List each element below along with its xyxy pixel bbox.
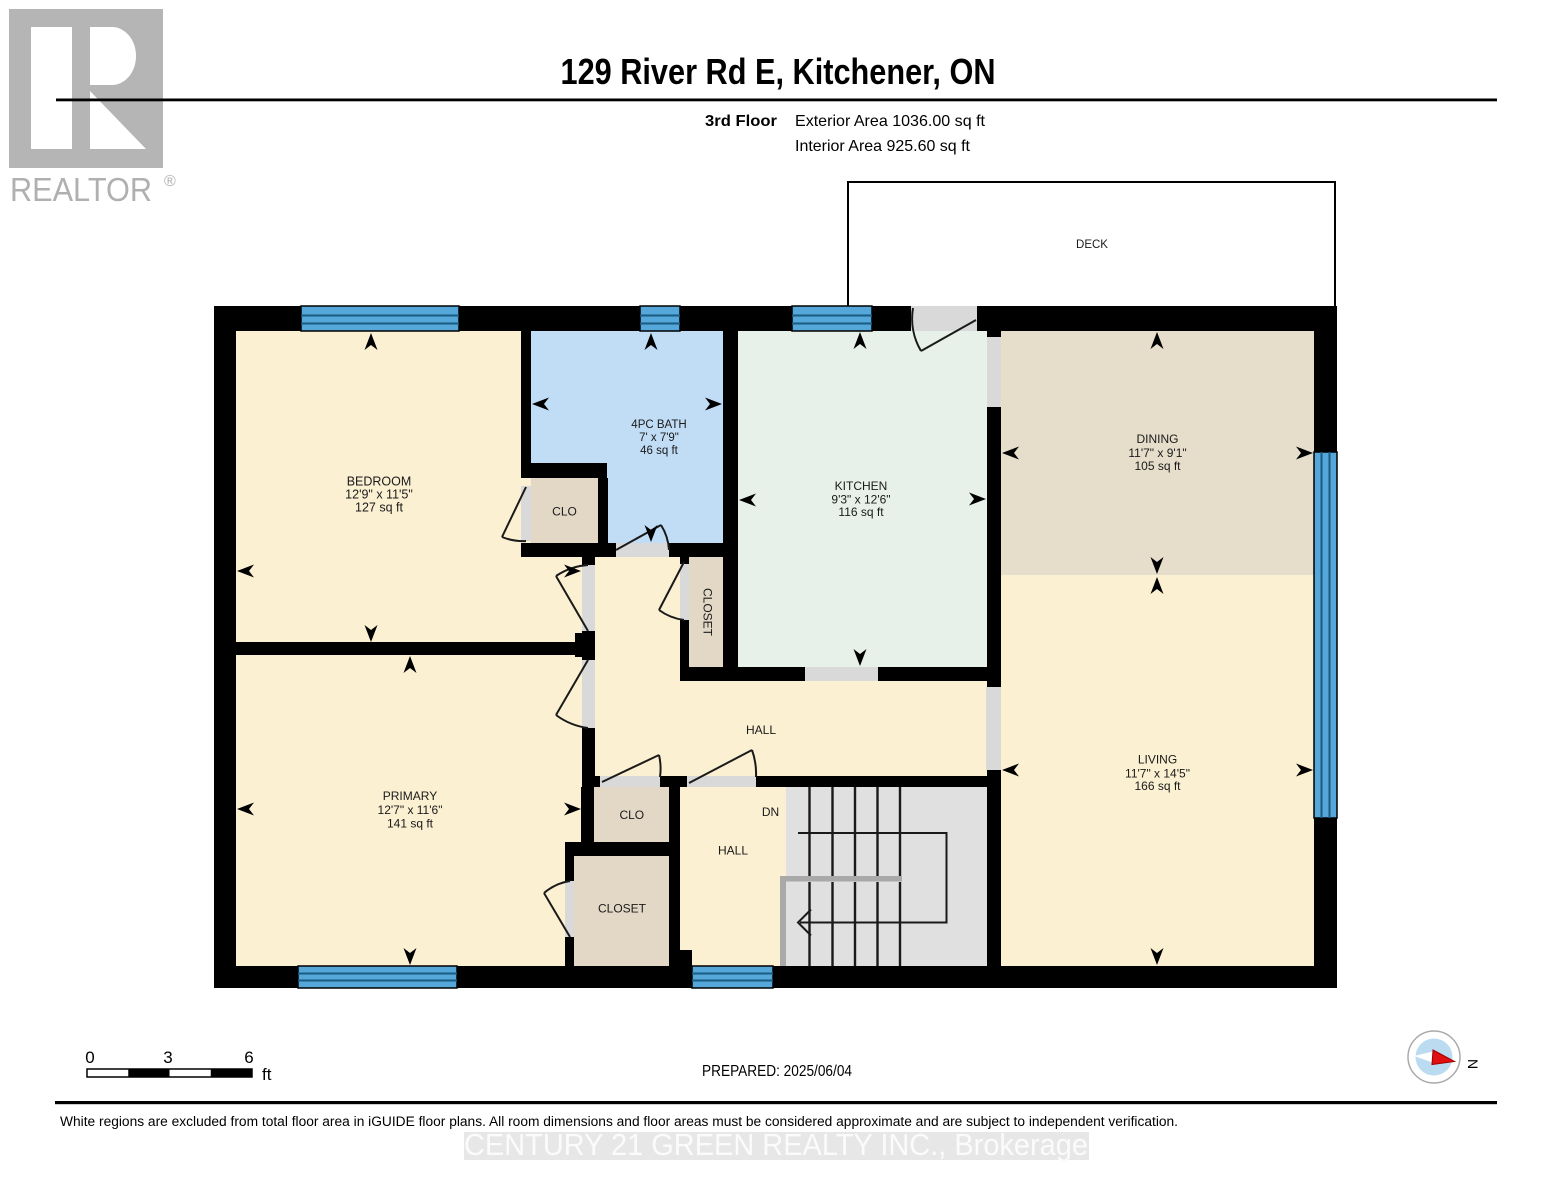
svg-text:12'7" x 11'6": 12'7" x 11'6": [378, 803, 443, 817]
svg-text:PREPARED: 2025/06/04: PREPARED: 2025/06/04: [702, 1063, 852, 1080]
svg-text:166 sq ft: 166 sq ft: [1134, 779, 1181, 793]
svg-text:ft: ft: [262, 1065, 272, 1084]
svg-text:127 sq ft: 127 sq ft: [355, 501, 403, 515]
svg-text:HALL: HALL: [746, 723, 776, 737]
svg-text:4PC BATH: 4PC BATH: [631, 419, 686, 431]
svg-text:116 sq ft: 116 sq ft: [838, 505, 884, 519]
svg-text:®: ®: [164, 173, 176, 190]
svg-text:12'9" x 11'5": 12'9" x 11'5": [345, 488, 413, 502]
svg-text:CENTURY 21 GREEN REALTY INC.,: CENTURY 21 GREEN REALTY INC., Brokerage: [464, 1127, 1088, 1162]
svg-text:6: 6: [244, 1048, 253, 1067]
svg-text:HALL: HALL: [718, 844, 748, 858]
svg-text:105 sq ft: 105 sq ft: [1134, 459, 1181, 473]
svg-text:3rd Floor: 3rd Floor: [705, 113, 777, 130]
svg-text:N: N: [1465, 1059, 1481, 1069]
svg-text:PRIMARY: PRIMARY: [383, 789, 437, 803]
svg-text:CLOSET: CLOSET: [701, 588, 715, 637]
svg-text:LIVING: LIVING: [1138, 753, 1177, 767]
svg-text:141 sq ft: 141 sq ft: [387, 817, 434, 831]
svg-text:46 sq ft: 46 sq ft: [640, 445, 679, 457]
svg-text:REALTOR: REALTOR: [10, 171, 152, 208]
svg-text:BEDROOM: BEDROOM: [347, 475, 412, 489]
svg-text:Interior Area 925.60 sq ft: Interior Area 925.60 sq ft: [795, 138, 971, 155]
svg-text:CLO: CLO: [552, 505, 577, 519]
svg-text:7' x 7'9": 7' x 7'9": [639, 432, 679, 444]
svg-text:129 River Rd E, Kitchener, ON: 129 River Rd E, Kitchener, ON: [561, 51, 996, 92]
svg-text:DECK: DECK: [1076, 239, 1108, 251]
svg-text:CLO: CLO: [619, 808, 644, 822]
svg-text:CLOSET: CLOSET: [598, 902, 647, 916]
svg-text:Exterior Area 1036.00 sq ft: Exterior Area 1036.00 sq ft: [795, 113, 986, 130]
svg-text:KITCHEN: KITCHEN: [835, 479, 888, 493]
svg-text:DN: DN: [762, 805, 779, 819]
svg-text:DINING: DINING: [1137, 432, 1179, 446]
svg-text:3: 3: [163, 1048, 172, 1067]
svg-text:0: 0: [85, 1048, 94, 1067]
svg-text:11'7" x 9'1": 11'7" x 9'1": [1128, 446, 1186, 460]
